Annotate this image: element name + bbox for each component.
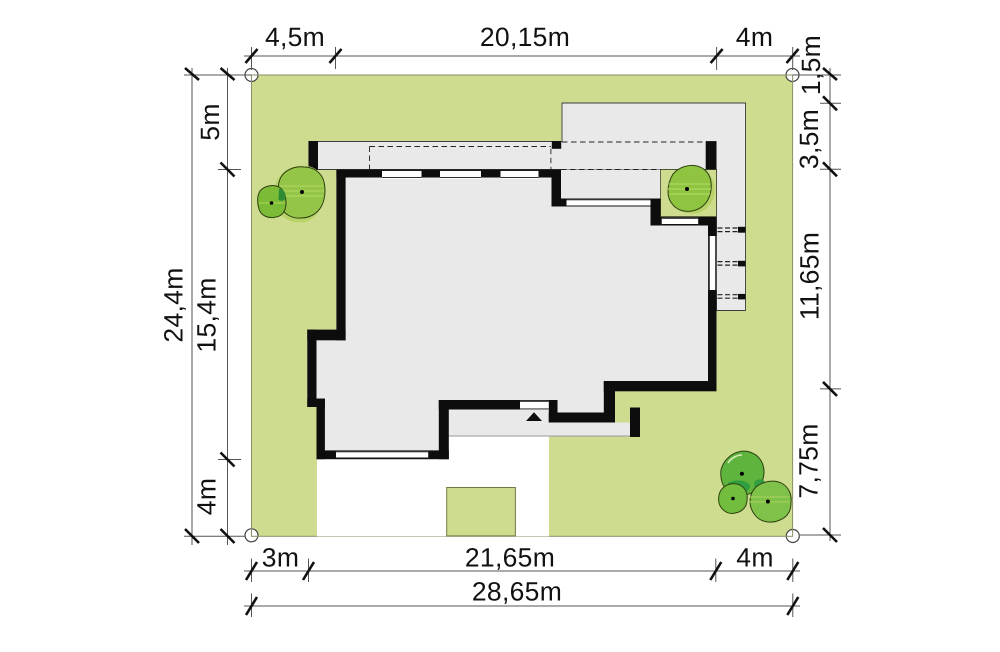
svg-text:4m: 4m [736,543,773,573]
svg-text:21,65m: 21,65m [465,543,555,573]
svg-text:1,5m: 1,5m [796,35,826,95]
svg-text:15,4m: 15,4m [192,277,222,352]
svg-text:24,4m: 24,4m [159,267,189,342]
svg-text:20,15m: 20,15m [480,22,570,52]
svg-text:7,75m: 7,75m [794,423,824,498]
svg-text:28,65m: 28,65m [472,577,562,607]
svg-text:5m: 5m [195,103,225,140]
svg-text:3m: 3m [262,543,299,573]
svg-text:4m: 4m [736,22,773,52]
svg-text:4m: 4m [192,478,222,515]
svg-text:4,5m: 4,5m [265,22,325,52]
svg-text:3,5m: 3,5m [794,109,824,169]
svg-text:11,65m: 11,65m [795,232,825,320]
